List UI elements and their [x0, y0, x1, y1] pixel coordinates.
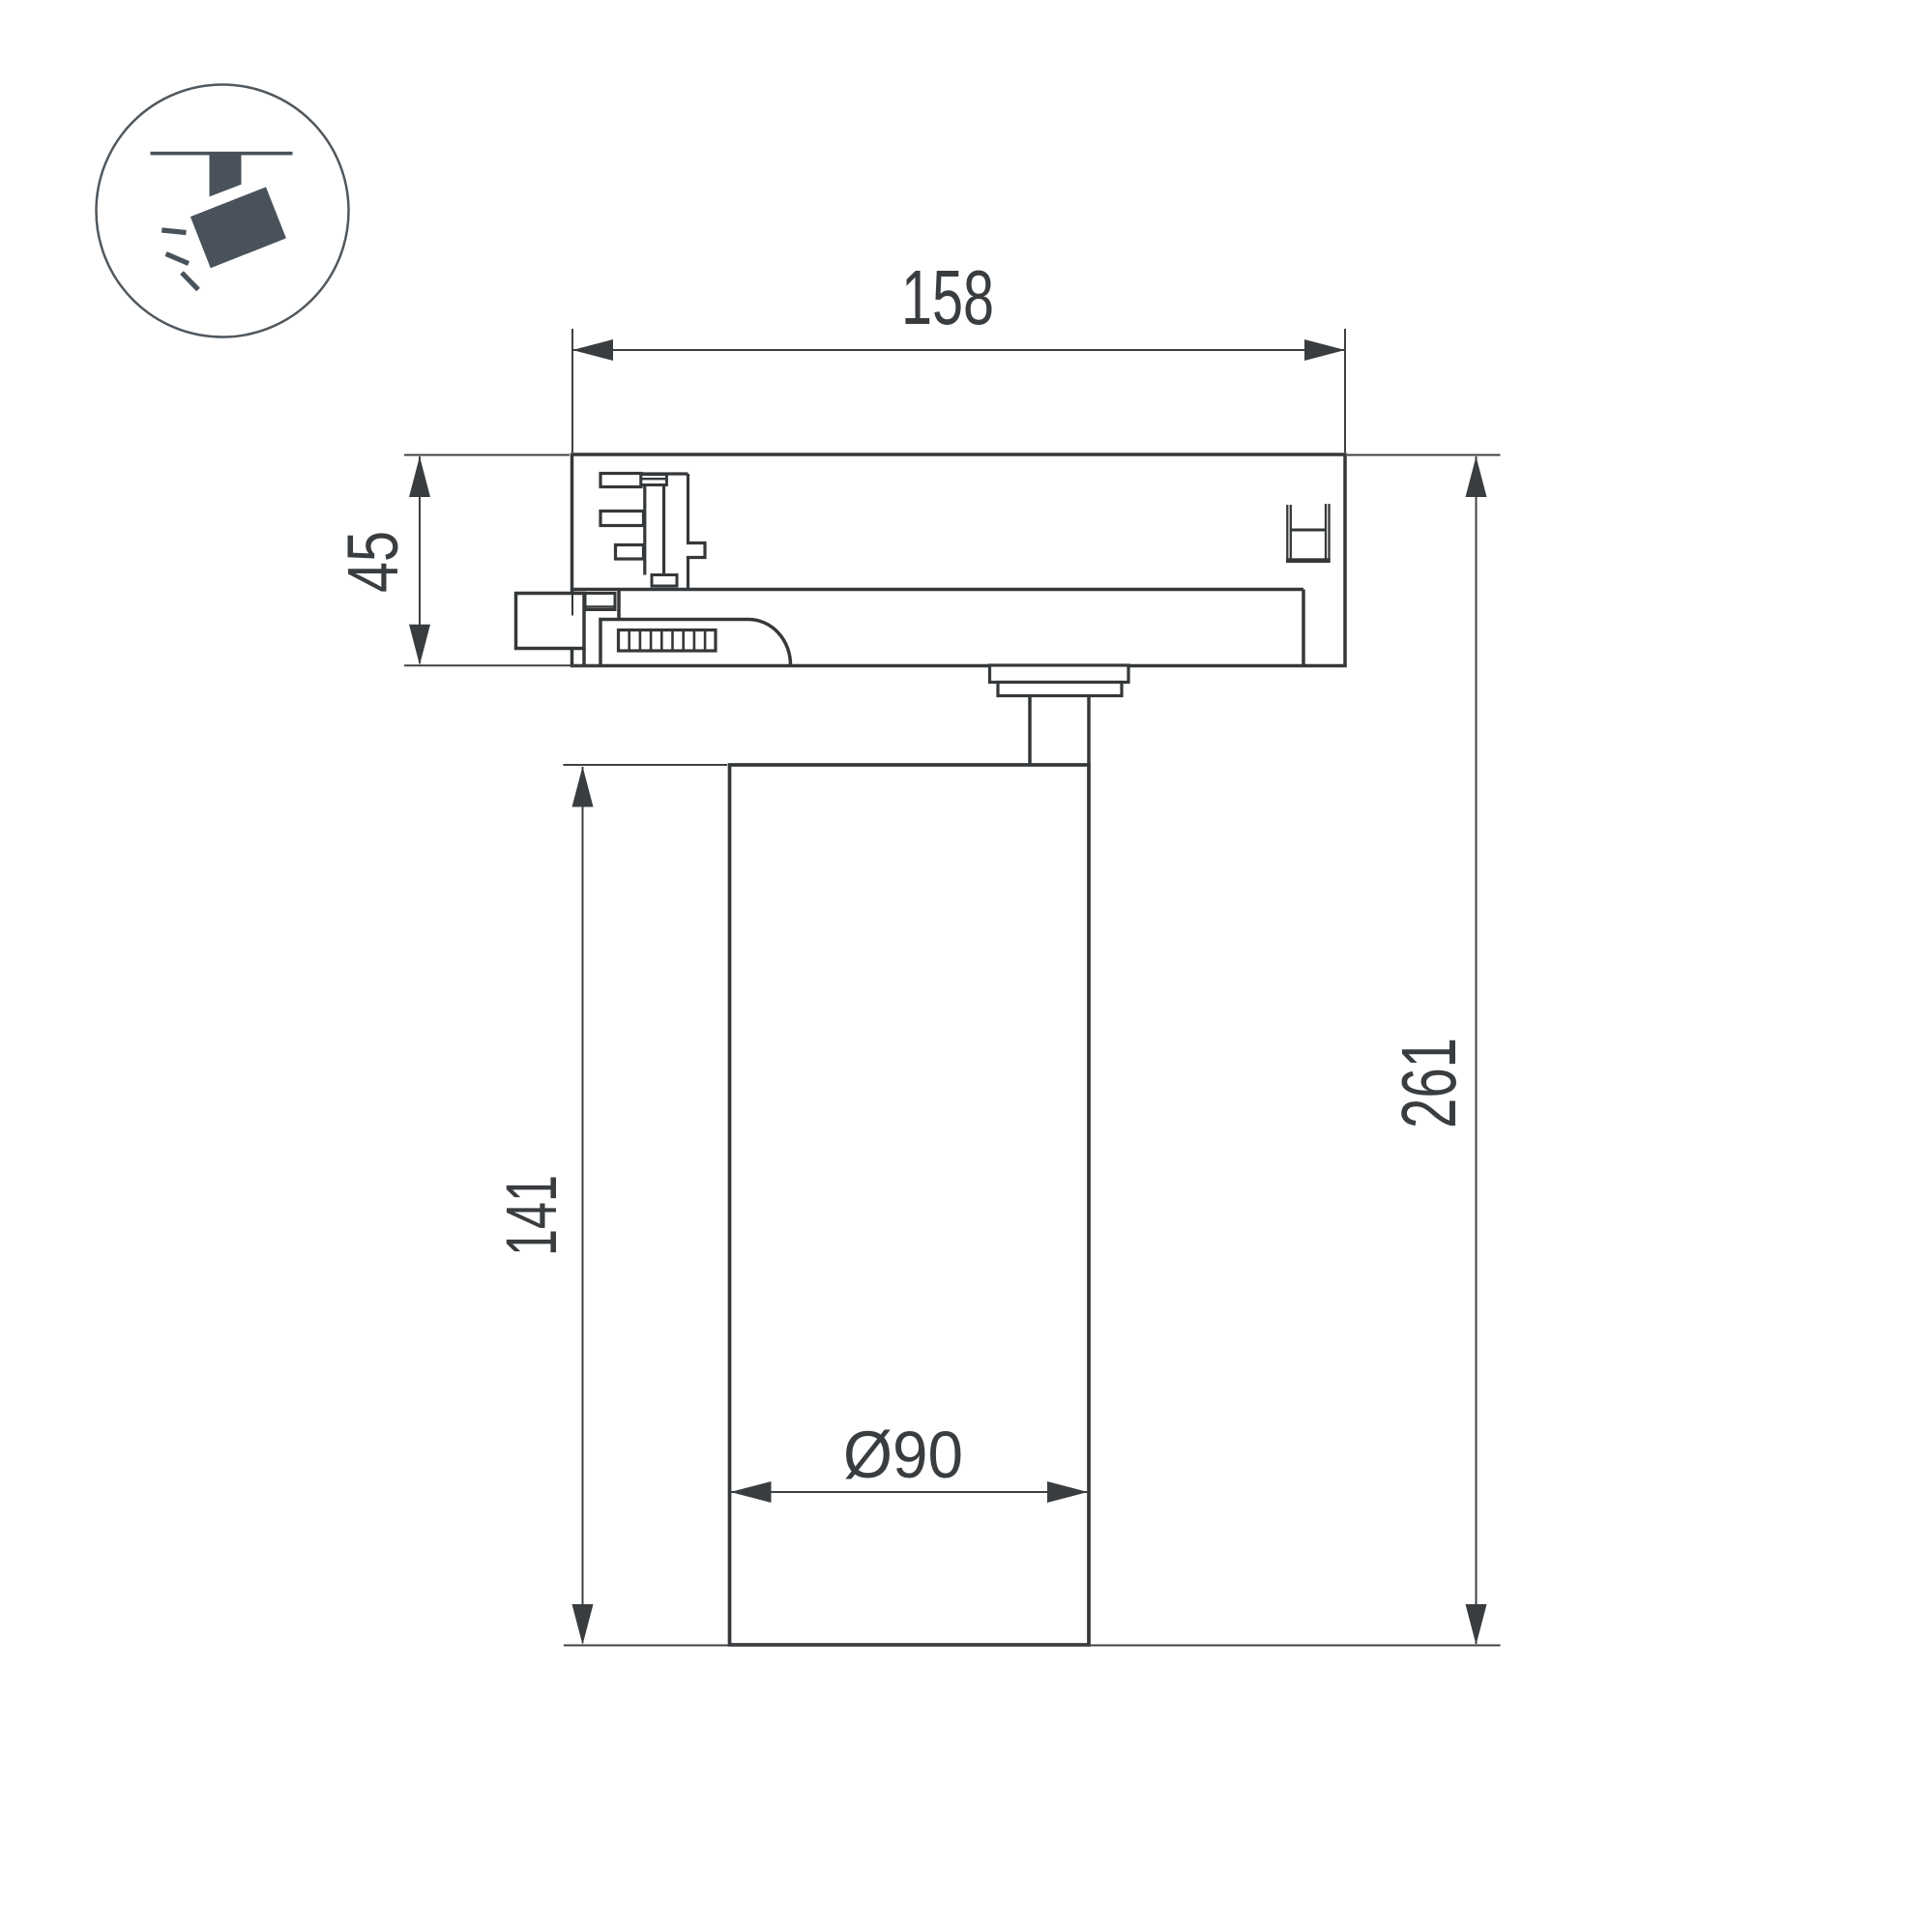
svg-text:141: 141: [491, 1175, 571, 1256]
svg-text:261: 261: [1386, 1038, 1472, 1128]
svg-text:158: 158: [901, 254, 994, 340]
svg-text:Ø90: Ø90: [843, 1418, 963, 1492]
svg-text:45: 45: [333, 531, 413, 593]
